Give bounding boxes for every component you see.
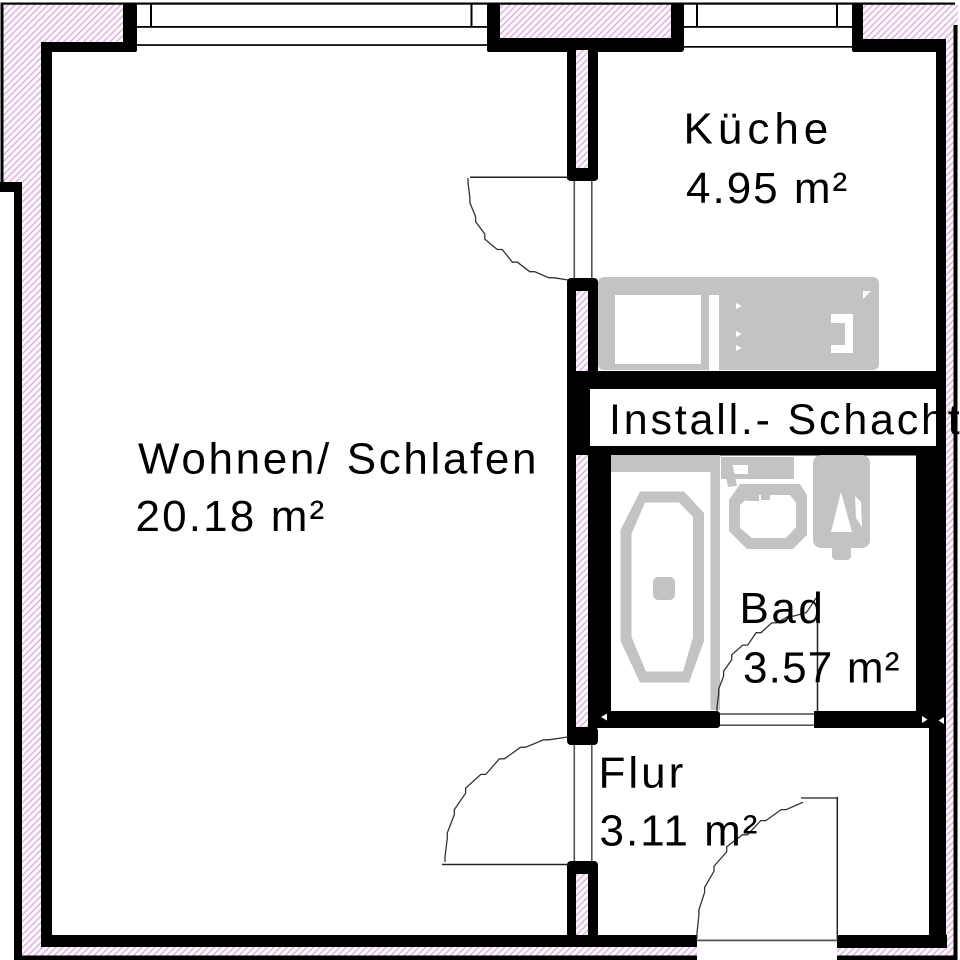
svg-text:4.95 m²: 4.95 m² <box>686 164 849 213</box>
svg-text:Küche: Küche <box>684 105 834 154</box>
svg-text:Bad: Bad <box>740 584 826 633</box>
svg-text:3.57 m²: 3.57 m² <box>743 644 901 693</box>
svg-text:20.18 m²: 20.18 m² <box>136 492 327 541</box>
svg-text:Flur: Flur <box>599 749 687 798</box>
svg-text:3.11 m²: 3.11 m² <box>600 807 760 856</box>
svg-text:Wohnen/ Schlafen: Wohnen/ Schlafen <box>138 435 539 484</box>
svg-text:Install.- Schacht: Install.- Schacht <box>609 396 960 444</box>
